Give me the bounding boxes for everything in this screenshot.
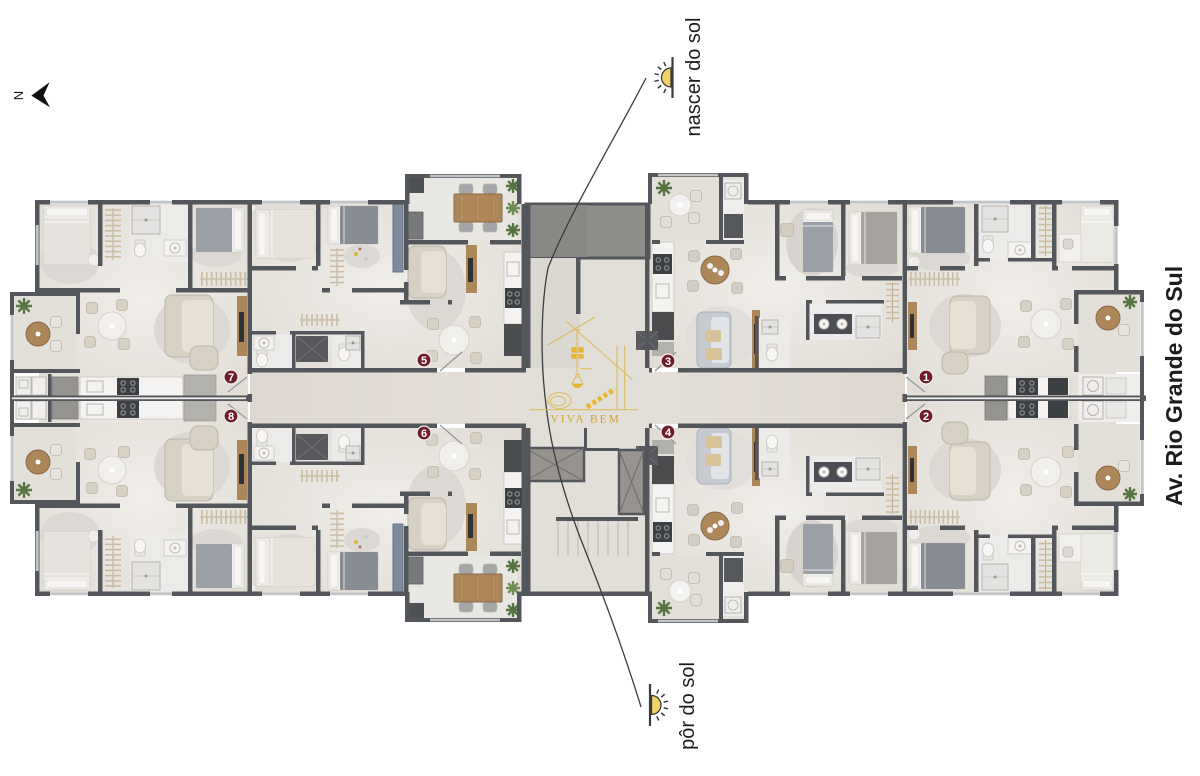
svg-text:5: 5 (421, 355, 427, 367)
svg-text:nascer do sol: nascer do sol (683, 18, 705, 137)
svg-text:N: N (11, 91, 26, 100)
svg-text:3: 3 (665, 356, 671, 368)
svg-text:2: 2 (923, 411, 929, 423)
svg-text:VIVA BEM: VIVA BEM (550, 414, 620, 426)
svg-text:8: 8 (228, 411, 234, 423)
svg-text:4: 4 (665, 427, 672, 439)
svg-text:6: 6 (421, 428, 427, 440)
svg-text:Av. Rio Grande do Sul: Av. Rio Grande do Sul (1161, 266, 1187, 506)
svg-text:1: 1 (923, 372, 929, 384)
svg-text:pôr do sol: pôr do sol (677, 662, 699, 750)
svg-text:7: 7 (228, 372, 234, 384)
